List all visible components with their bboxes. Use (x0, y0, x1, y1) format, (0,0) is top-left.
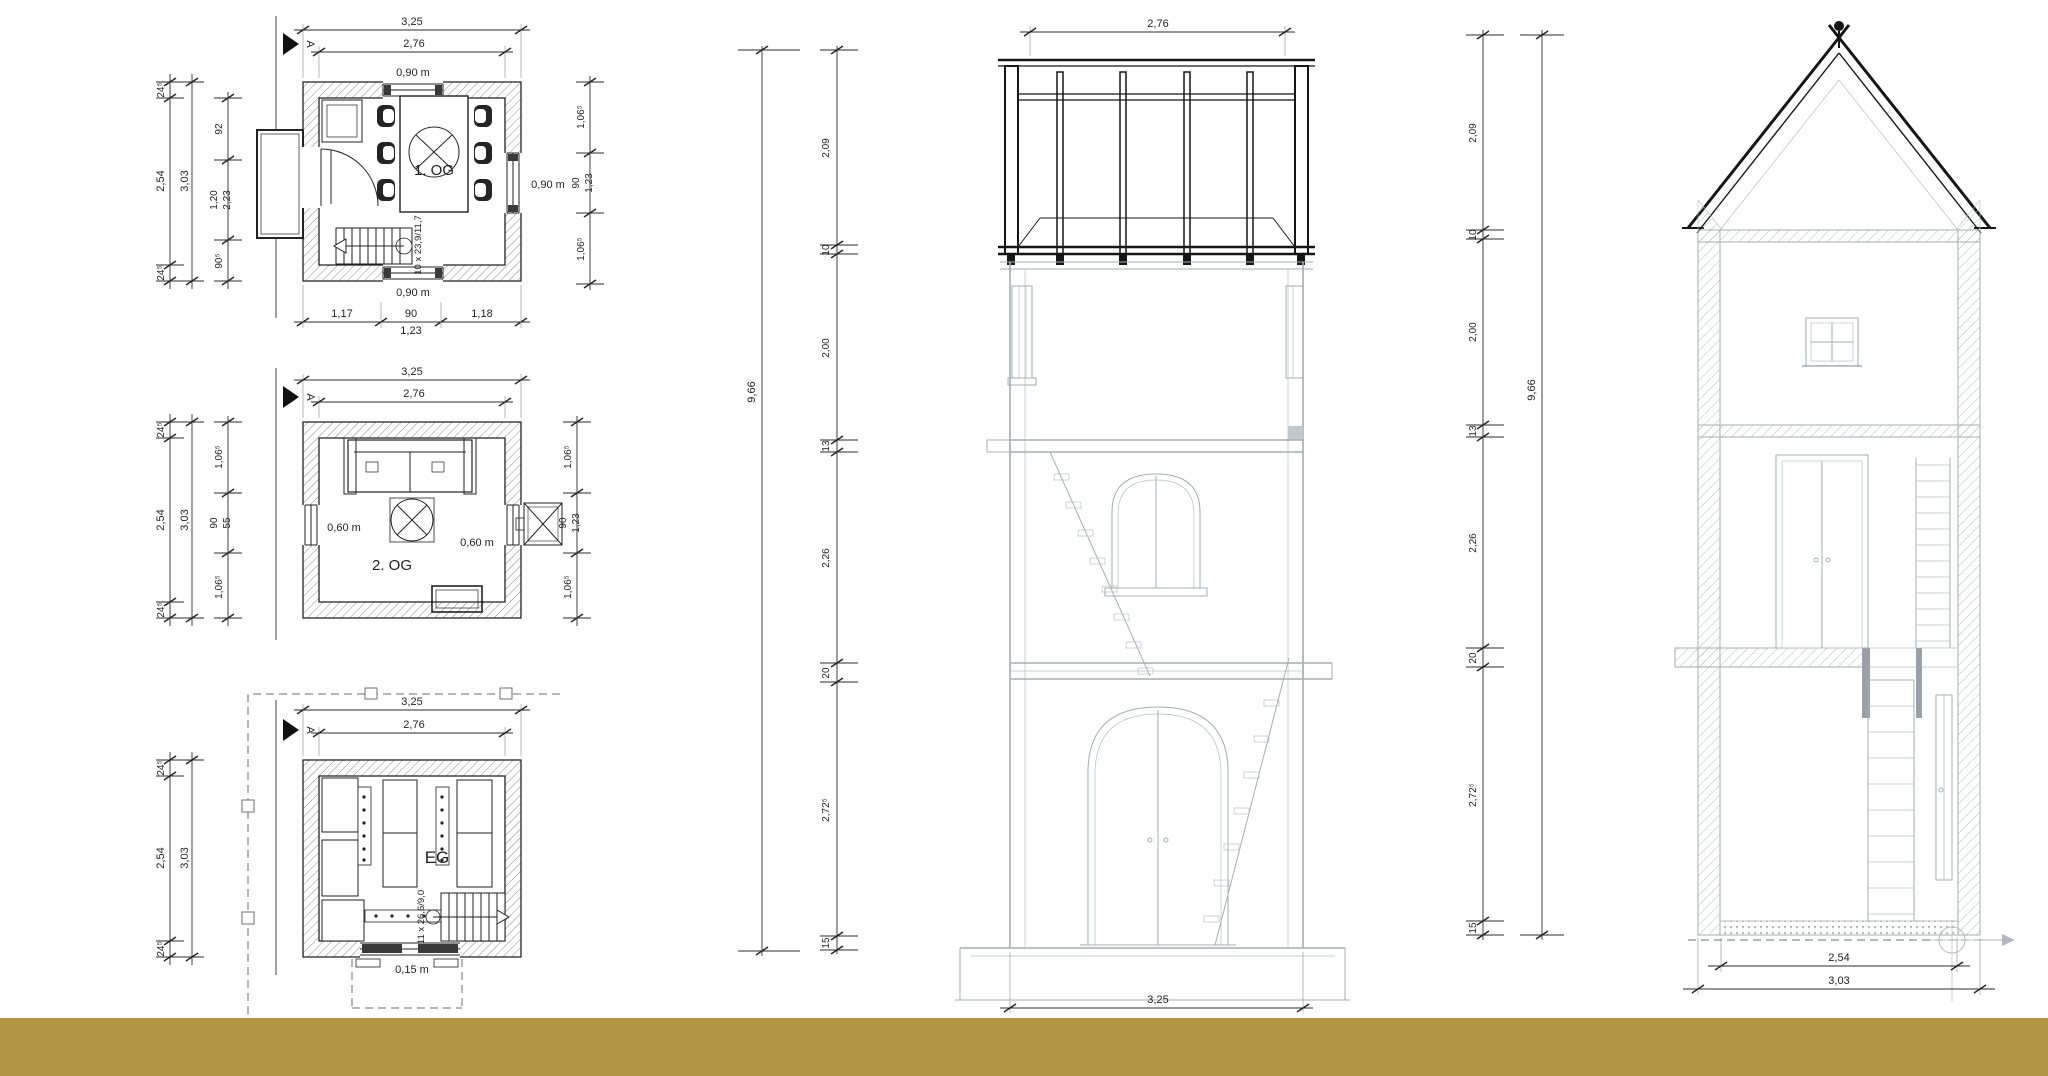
height-chain-dim: 2,09 10 2,00 13 2,26 20 2,72⁵ 15 (1466, 30, 1504, 940)
svg-text:1,06⁵: 1,06⁵ (214, 445, 225, 469)
footer-gold-bar (0, 1018, 2048, 1076)
section-b-elevation: 2,09 10 2,00 13 2,26 20 2,72⁵ 15 9,66 (1466, 21, 2015, 1002)
svg-text:1,18: 1,18 (471, 308, 492, 320)
attic-window (1802, 318, 1862, 366)
svg-text:2,26: 2,26 (1468, 533, 1479, 553)
svg-text:90: 90 (405, 308, 417, 320)
svg-text:20: 20 (821, 667, 832, 679)
architectural-drawing-sheet: A (0, 0, 2048, 1076)
entry-door (301, 147, 378, 208)
stair-label: 10 x 23,9/11,7 (413, 215, 424, 275)
svg-text:1,06⁵: 1,06⁵ (214, 575, 225, 599)
svg-text:1,23: 1,23 (571, 513, 582, 533)
floor-plan-eg: A EG (155, 688, 560, 1046)
section-marker-label: A (304, 40, 316, 48)
floor-plan-1og: A (155, 16, 604, 337)
svg-text:2,09: 2,09 (821, 138, 832, 158)
svg-text:1,17: 1,17 (331, 308, 352, 320)
stair-label: 11 x 26,6/9,0 (416, 890, 427, 944)
svg-text:3,25: 3,25 (1147, 994, 1168, 1006)
svg-text:1,06⁵: 1,06⁵ (576, 105, 587, 129)
side-door (1936, 695, 1952, 880)
floor-label: EG (425, 848, 450, 867)
svg-text:2,54: 2,54 (155, 170, 167, 191)
svg-text:10: 10 (1468, 229, 1479, 241)
svg-text:9,66: 9,66 (746, 381, 758, 402)
svg-text:3,03: 3,03 (1828, 975, 1849, 987)
pavilion-width-dim: 2,76 (1020, 18, 1295, 56)
section-marker-icon (283, 33, 299, 55)
svg-text:1,06⁵: 1,06⁵ (563, 445, 574, 469)
svg-text:20: 20 (1468, 652, 1479, 664)
round-table-lamp (390, 498, 434, 542)
svg-text:2,72⁵: 2,72⁵ (1468, 783, 1479, 807)
svg-text:24⁵: 24⁵ (156, 422, 167, 437)
base-width-dims: 2,54 3,03 (1683, 938, 1995, 995)
svg-text:13: 13 (821, 440, 832, 452)
floor-plan-2og: A (155, 366, 591, 640)
svg-text:1,23: 1,23 (400, 325, 421, 337)
gable-roof (1682, 21, 1996, 233)
svg-text:10: 10 (821, 244, 832, 256)
svg-text:2,00: 2,00 (821, 338, 832, 358)
svg-text:3,25: 3,25 (401, 16, 422, 28)
sofa (344, 438, 476, 494)
svg-text:90: 90 (209, 517, 220, 529)
svg-text:3,03: 3,03 (179, 847, 191, 868)
svg-text:90: 90 (558, 517, 569, 529)
roof-finial-icon (1834, 21, 1844, 31)
svg-text:24⁵: 24⁵ (156, 82, 167, 97)
section-a-elevation: 9,66 2,09 10 2,00 13 2,26 20 2,72⁵ 15 (738, 18, 1350, 1013)
svg-text:24⁵: 24⁵ (156, 941, 167, 956)
dimensions: 3,25 2,76 0,90 m 24⁵ 2,54 3,03 24⁵ 92 1,… (155, 16, 604, 337)
svg-text:55: 55 (222, 517, 233, 529)
balcony (257, 130, 303, 238)
svg-text:1,06⁵: 1,06⁵ (576, 237, 587, 261)
svg-text:2,09: 2,09 (1468, 123, 1479, 143)
svg-text:2,23: 2,23 (222, 190, 233, 210)
svg-text:2,54: 2,54 (155, 509, 167, 530)
svg-text:1,06⁵: 1,06⁵ (563, 575, 574, 599)
svg-text:15: 15 (1468, 922, 1479, 934)
blueprint-canvas: A (0, 0, 2048, 1076)
svg-text:0,90 m: 0,90 m (396, 287, 430, 299)
svg-text:0,90 m: 0,90 m (396, 67, 430, 79)
svg-text:2,26: 2,26 (821, 548, 832, 568)
svg-text:1,23: 1,23 (584, 173, 595, 193)
section-marker-icon (283, 719, 299, 741)
window-left (301, 505, 321, 545)
middle-floor-door (1776, 455, 1868, 648)
section-marker-icon (283, 386, 299, 408)
svg-text:24⁵: 24⁵ (156, 265, 167, 280)
section-marker-label: A (304, 393, 316, 401)
svg-text:2,54: 2,54 (1828, 952, 1849, 964)
entrance-glazing (360, 939, 460, 959)
window-right (503, 505, 523, 545)
svg-text:0,60 m: 0,60 m (327, 522, 361, 534)
ship-ladder-lower (1868, 680, 1914, 921)
svg-text:90⁵: 90⁵ (214, 253, 225, 268)
overall-height-dim: 9,66 (738, 46, 800, 956)
svg-text:2,54: 2,54 (155, 847, 167, 868)
ship-ladder-upper (1916, 458, 1950, 648)
section-body (1675, 230, 1992, 940)
floor-label: 1. OG (414, 162, 454, 179)
svg-text:2,76: 2,76 (1147, 18, 1168, 30)
svg-text:92: 92 (214, 123, 225, 135)
svg-text:3,03: 3,03 (179, 509, 191, 530)
svg-text:90: 90 (571, 177, 582, 189)
svg-text:1,20: 1,20 (209, 190, 220, 210)
floor-label: 2. OG (372, 557, 412, 574)
height-chain-dim: 2,09 10 2,00 13 2,26 20 2,72⁵ 15 (820, 46, 858, 954)
svg-text:0,90 m: 0,90 m (531, 179, 565, 191)
svg-text:13: 13 (1468, 425, 1479, 437)
window-right (503, 153, 523, 213)
svg-text:9,66: 9,66 (1526, 379, 1538, 400)
svg-text:15: 15 (821, 937, 832, 949)
svg-text:2,76: 2,76 (403, 38, 424, 50)
section-body (955, 262, 1350, 1000)
base-width-dim: 3,25 (1000, 952, 1313, 1013)
svg-text:2,00: 2,00 (1468, 322, 1479, 342)
svg-text:3,03: 3,03 (179, 170, 191, 191)
svg-text:3,25: 3,25 (401, 696, 422, 708)
svg-text:2,72⁵: 2,72⁵ (821, 798, 832, 822)
svg-text:3,25: 3,25 (401, 366, 422, 378)
svg-text:0,60 m: 0,60 m (460, 537, 494, 549)
overall-height-dim: 9,66 (1520, 30, 1564, 940)
svg-text:24⁵: 24⁵ (156, 602, 167, 617)
svg-text:2,76: 2,76 (403, 388, 424, 400)
dimensions: 3,25 2,76 24⁵ 2,54 3,03 24⁵ 1,06⁵ 90 55 … (155, 366, 591, 626)
svg-text:0,15 m: 0,15 m (395, 964, 429, 976)
closet (322, 100, 362, 142)
dining-table (400, 96, 468, 212)
roof-pavilion (998, 60, 1315, 265)
svg-text:2,76: 2,76 (403, 719, 424, 731)
svg-text:24⁵: 24⁵ (156, 760, 167, 775)
side-table (432, 586, 482, 612)
